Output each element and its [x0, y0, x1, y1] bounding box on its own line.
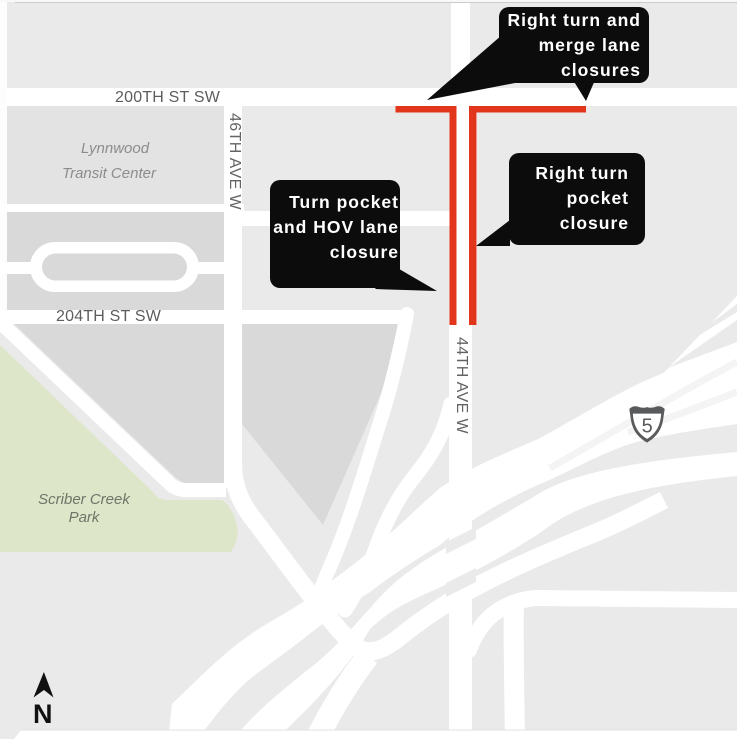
svg-text:5: 5: [642, 416, 653, 438]
